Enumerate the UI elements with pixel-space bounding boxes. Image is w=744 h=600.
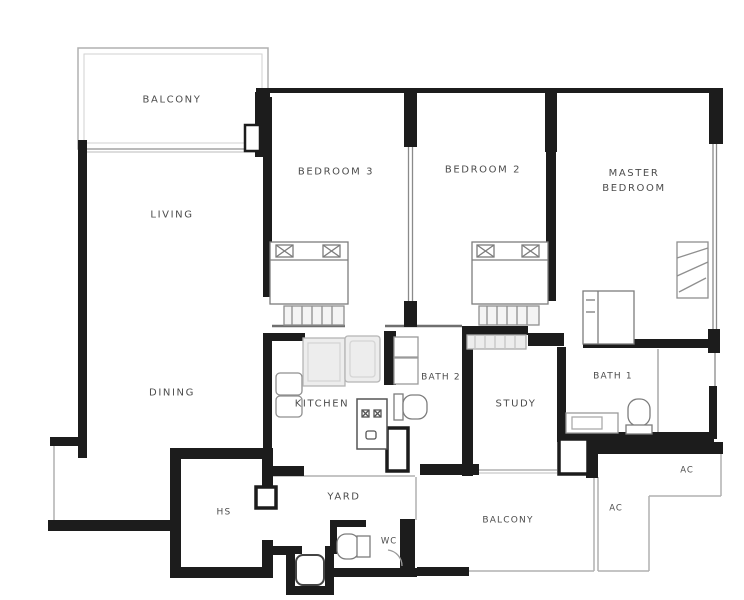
kitchen-counter-icon [303,336,380,386]
room-label-hs: HS [217,506,232,521]
stove-icon [357,399,387,449]
room-label-ac-lower: AC [609,502,623,517]
bed2-icon [472,242,548,304]
bath2-cabinet-icon [394,337,418,384]
room-label-yard: YARD [327,490,360,505]
room-label-kitchen: KITCHEN [295,397,350,412]
hs-door [256,487,276,508]
wardrobe2-icon [479,306,539,325]
bath1-vanity-icon [566,413,618,433]
wc-toilet-icon [337,534,370,559]
floorplan-canvas: BALCONY LIVING DINING BEDROOM 3 BEDROOM … [0,0,744,600]
master-wardrobe-icon [677,242,708,298]
bath1-toilet-icon [626,399,652,434]
room-label-dining: DINING [149,386,195,401]
room-label-bedroom2: BEDROOM 2 [445,163,521,178]
room-label-wc: WC [381,535,397,550]
room-label-living: LIVING [150,208,193,223]
bath2-toilet-icon [394,394,427,420]
study-cabinet-icon [467,335,526,349]
corner-shaft [559,439,588,474]
room-label-ac-upper: AC [680,464,694,479]
room-label-balcony-bottom: BALCONY [482,514,533,529]
room-label-balcony-top: BALCONY [143,93,202,108]
wardrobe3-icon [284,306,344,325]
floorplan-drawing [0,0,744,600]
room-label-bath1: BATH 1 [593,370,633,385]
room-label-master-bedroom: MASTER BEDROOM [602,166,665,196]
room-label-bath2: BATH 2 [421,371,461,386]
bath2-duct [387,428,408,471]
wc-floor-trap-arc [388,550,402,566]
room-label-study: STUDY [495,397,536,412]
bed3-icon [270,242,348,304]
master-bed-icon [583,291,634,344]
room-label-bedroom3: BEDROOM 3 [298,165,374,180]
balcony-window-box [245,125,260,151]
basin-icon [296,555,324,585]
